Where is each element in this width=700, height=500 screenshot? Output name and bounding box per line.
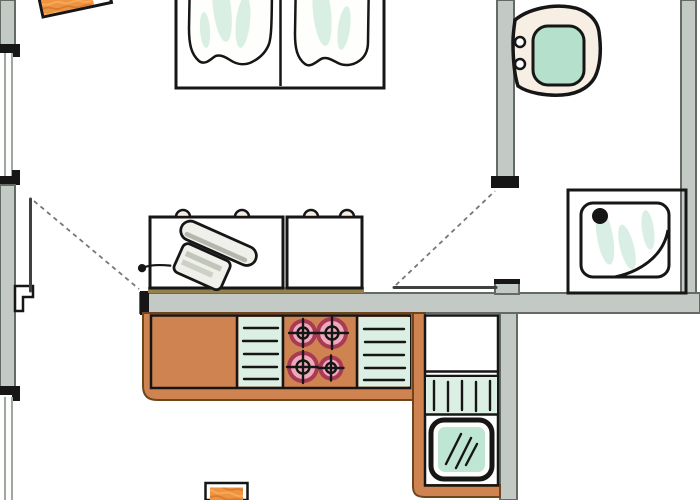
kitchen-counter xyxy=(143,313,413,400)
knob-icon xyxy=(235,210,249,217)
floor-plan-drawing xyxy=(0,0,700,500)
shower xyxy=(568,190,686,293)
drainboard-left xyxy=(239,316,284,388)
window-frame-icon xyxy=(0,44,20,53)
door-left xyxy=(31,199,140,291)
knob-icon xyxy=(304,210,318,217)
middle-wall xyxy=(140,293,700,313)
stool-fill xyxy=(210,488,243,500)
knob-icon xyxy=(176,210,190,217)
upper-cabinet xyxy=(425,372,498,377)
drainboard-right xyxy=(359,317,411,387)
dish-rack xyxy=(425,377,498,415)
burner-icon xyxy=(319,356,344,381)
door-swing-line xyxy=(34,201,139,289)
nightstand xyxy=(36,0,112,17)
west-wall-top xyxy=(0,0,15,46)
corner-unit xyxy=(413,313,500,497)
drain-icon xyxy=(592,208,608,224)
toilet-hinge-icon xyxy=(515,37,525,47)
door-bathroom xyxy=(394,191,496,288)
knob-icon xyxy=(340,210,354,217)
wall-end-cap xyxy=(140,291,149,315)
phone-cord-end xyxy=(137,263,148,274)
burner-icon xyxy=(316,317,348,349)
toilet-hinge-icon xyxy=(515,59,525,69)
bathroom-wall xyxy=(497,0,514,178)
toilet-bowl xyxy=(533,26,584,85)
burner-icon xyxy=(287,351,319,383)
wall-end-cap xyxy=(491,176,519,188)
window-frame-icon xyxy=(12,52,20,57)
window-top xyxy=(3,53,12,176)
window-bottom xyxy=(3,395,12,500)
stool xyxy=(206,483,248,500)
door-swing-line xyxy=(396,191,495,285)
west-wall-middle xyxy=(0,185,15,388)
window-frame-icon xyxy=(12,170,20,176)
burner-icon xyxy=(289,319,317,347)
phone-cord xyxy=(144,256,170,276)
window-frame-icon xyxy=(12,395,20,401)
sideboard-right xyxy=(287,217,362,288)
window-frame-icon xyxy=(0,176,20,185)
double-bed xyxy=(176,0,384,88)
east-wall xyxy=(681,0,696,313)
toilet xyxy=(513,6,600,95)
duvet-right xyxy=(295,0,369,65)
window-frame-icon xyxy=(0,386,20,395)
lower-wall xyxy=(500,313,517,500)
floor-plan xyxy=(0,0,700,500)
oven-glass-door xyxy=(431,420,492,479)
wall-end-cap xyxy=(494,279,520,284)
